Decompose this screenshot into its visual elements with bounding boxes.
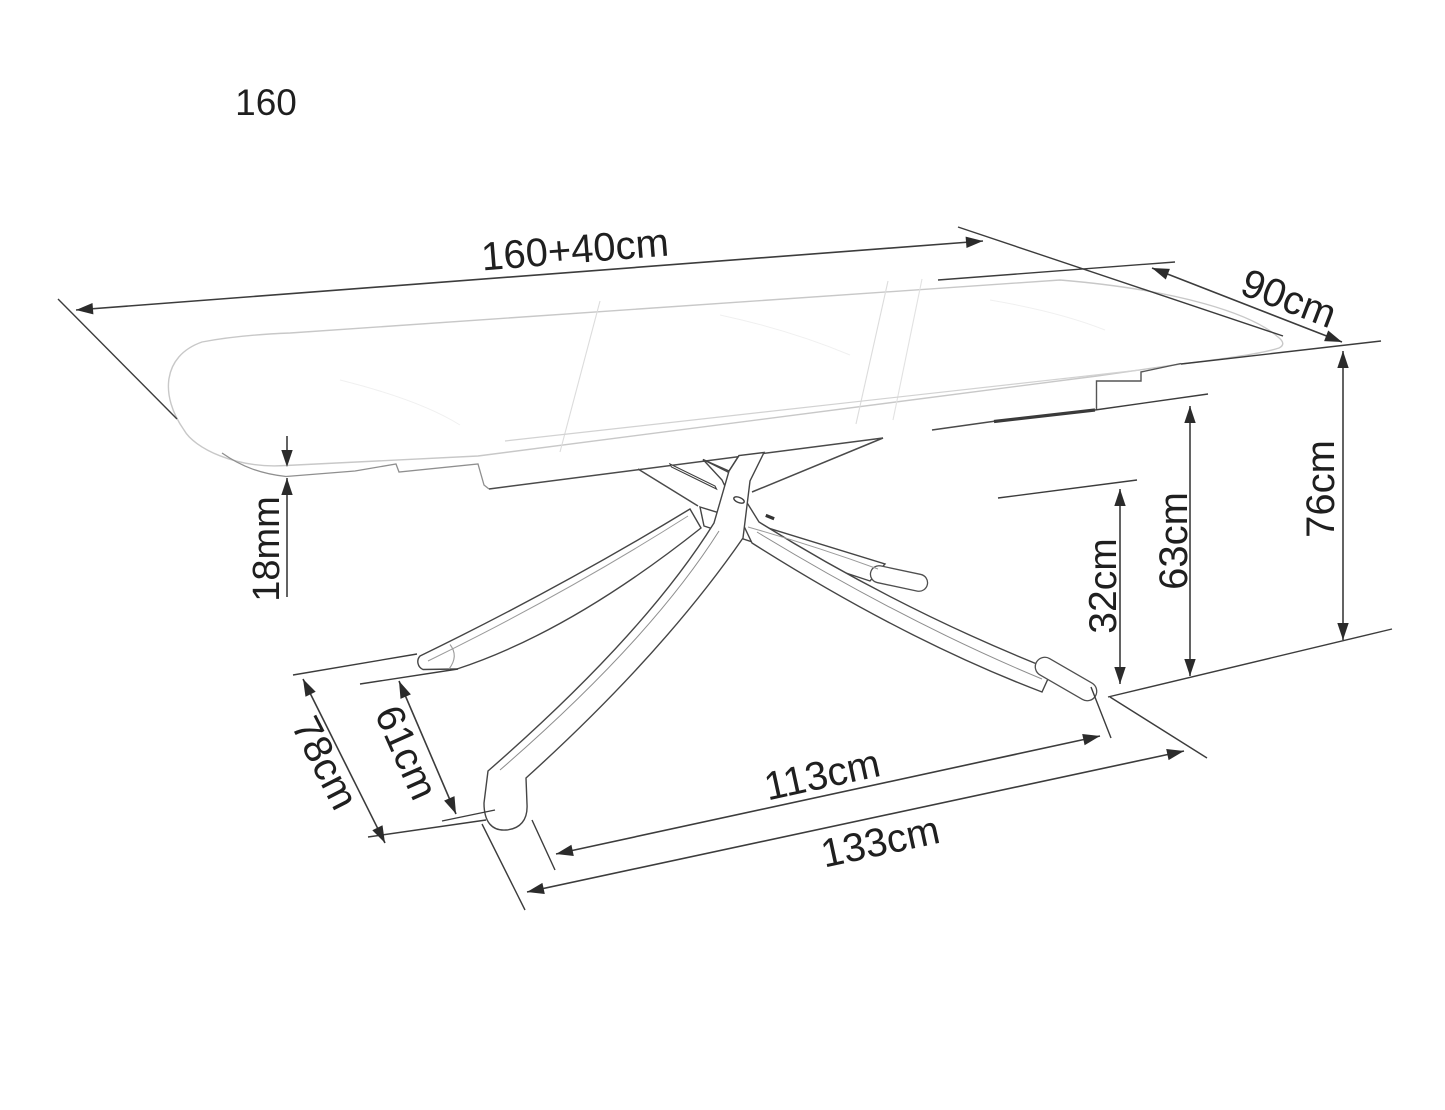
svg-text:18mm: 18mm	[246, 496, 288, 602]
svg-text:160: 160	[235, 82, 297, 123]
svg-text:76cm: 76cm	[1299, 440, 1343, 538]
svg-text:63cm: 63cm	[1152, 492, 1196, 590]
svg-text:32cm: 32cm	[1082, 538, 1125, 633]
